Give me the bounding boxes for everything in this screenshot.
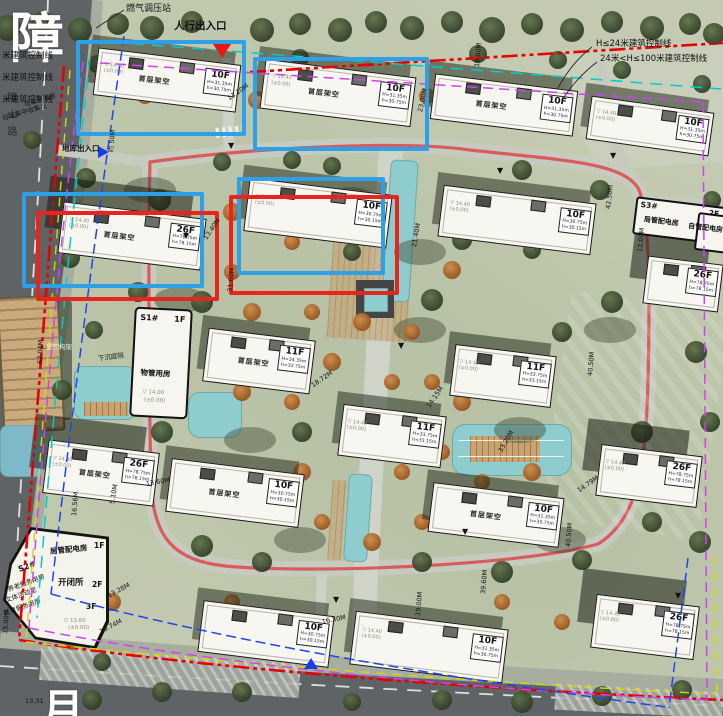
pedestrian-entrance-label: 人行出入口 <box>174 20 227 32</box>
ctrl-line-note-2: 米建筑控制线 <box>2 74 53 84</box>
gas-station-label: 燃气调压站 <box>126 4 171 14</box>
site-plan: ▽ 14.40(±0.00)首层架空10FH=31.35mh=30.75m▽ 1… <box>0 0 723 716</box>
legend-line-1: H≤24米建筑控制线 <box>596 40 671 50</box>
garage-entrance-label: 地库出入口 <box>62 145 100 154</box>
pergola-label: 景观构架 <box>46 344 72 351</box>
west-road-name-char: 障 <box>10 0 64 73</box>
south-road-name-char: 月 <box>42 676 84 716</box>
pedestrian-entrance-marker <box>213 44 231 58</box>
ctrl-line-note-1: 米建筑控制线 <box>2 52 53 62</box>
south-entrance-marker <box>304 658 318 669</box>
legend-line-2: 24米<H≤100米建筑控制线 <box>600 55 707 65</box>
